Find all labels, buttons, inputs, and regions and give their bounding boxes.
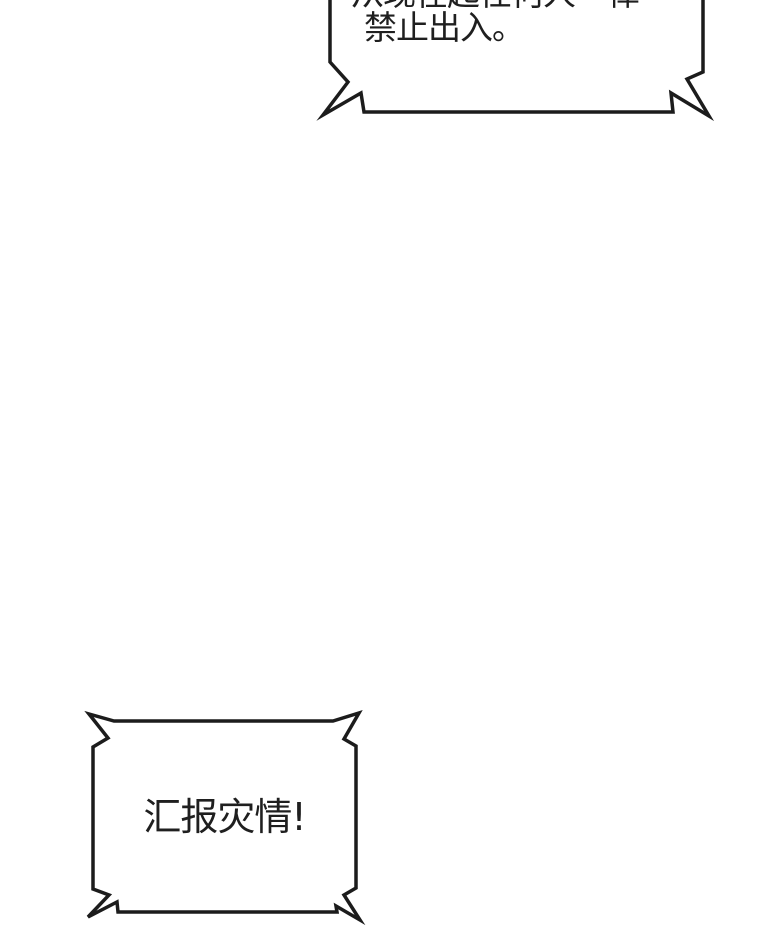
speech-bubble-bottom-text: 汇报灾情! [143, 797, 305, 837]
speech-bubble-bottom-text-box: 汇报灾情! [93, 721, 356, 912]
comic-page: 从现在起任何人一律 禁止出入。 汇报灾情! [0, 0, 760, 933]
